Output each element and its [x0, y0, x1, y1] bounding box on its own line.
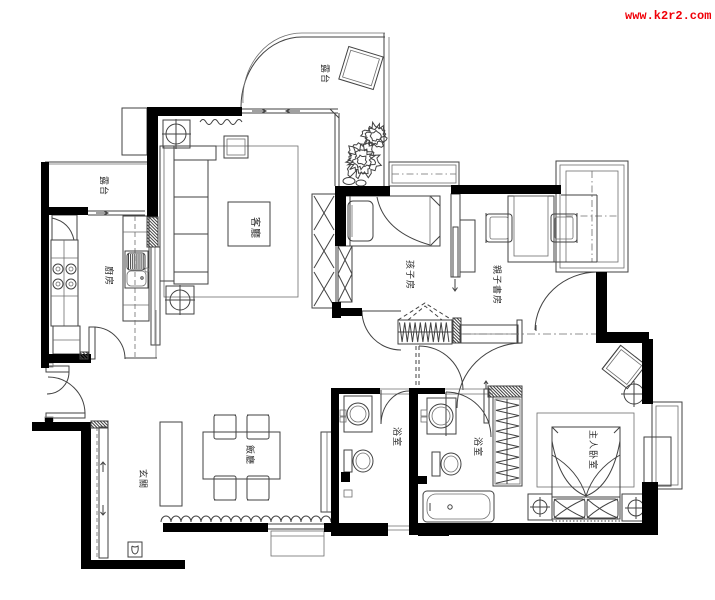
svg-text:露台: 露台 — [320, 64, 331, 84]
svg-text:www.k2r2.com: www.k2r2.com — [625, 9, 711, 23]
svg-text:親子書房: 親子書房 — [492, 265, 503, 305]
svg-text:客廳: 客廳 — [249, 217, 262, 239]
svg-text:孩子房: 孩子房 — [405, 260, 416, 290]
svg-text:主人卧室: 主人卧室 — [588, 430, 599, 470]
svg-text:露台: 露台 — [99, 176, 110, 196]
svg-text:玄關: 玄關 — [138, 469, 149, 489]
svg-text:浴室: 浴室 — [392, 427, 403, 447]
svg-text:廚房: 廚房 — [104, 266, 115, 286]
svg-text:浴室: 浴室 — [473, 437, 484, 457]
svg-text:飯廳: 飯廳 — [245, 445, 256, 465]
